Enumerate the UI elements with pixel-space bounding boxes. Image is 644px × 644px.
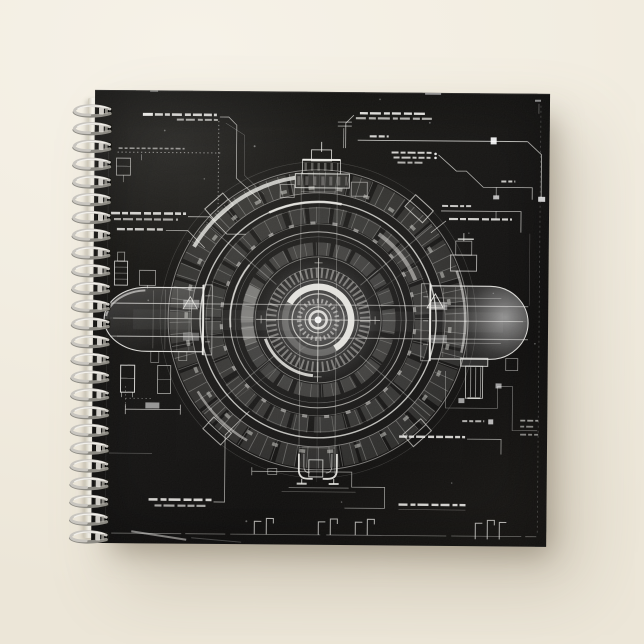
spiral-coil xyxy=(74,141,112,152)
spiral-coil xyxy=(73,247,111,258)
spiral-coil xyxy=(73,301,111,312)
spiral-coil xyxy=(71,443,109,454)
spiral-coil xyxy=(74,194,112,205)
spiral-coil xyxy=(73,212,111,223)
spiral-coil xyxy=(72,372,110,383)
spiral-coil xyxy=(74,159,112,170)
spiral-coil xyxy=(71,478,109,489)
spiral-coil xyxy=(74,123,112,134)
spiral-binding xyxy=(65,102,115,546)
spiral-coil xyxy=(72,389,110,400)
film-grain xyxy=(91,90,550,547)
spiral-coil xyxy=(73,283,111,294)
cover-artwork xyxy=(91,90,550,547)
spiral-coil xyxy=(71,460,109,471)
spiral-coil xyxy=(74,105,112,116)
spiral-coil xyxy=(72,354,110,365)
front-cover xyxy=(91,90,550,547)
spiral-coil xyxy=(71,514,109,525)
spiral-coil xyxy=(72,407,110,418)
spiral-coil xyxy=(74,176,112,187)
spiral-coil xyxy=(71,496,109,507)
spiral-coil xyxy=(72,336,110,347)
notebook xyxy=(91,90,550,547)
spiral-coil xyxy=(73,230,111,241)
spiral-coil xyxy=(71,531,109,542)
spiral-coil xyxy=(73,265,111,276)
scene xyxy=(0,0,644,644)
spiral-coil xyxy=(73,318,111,329)
spiral-coil xyxy=(72,425,110,436)
